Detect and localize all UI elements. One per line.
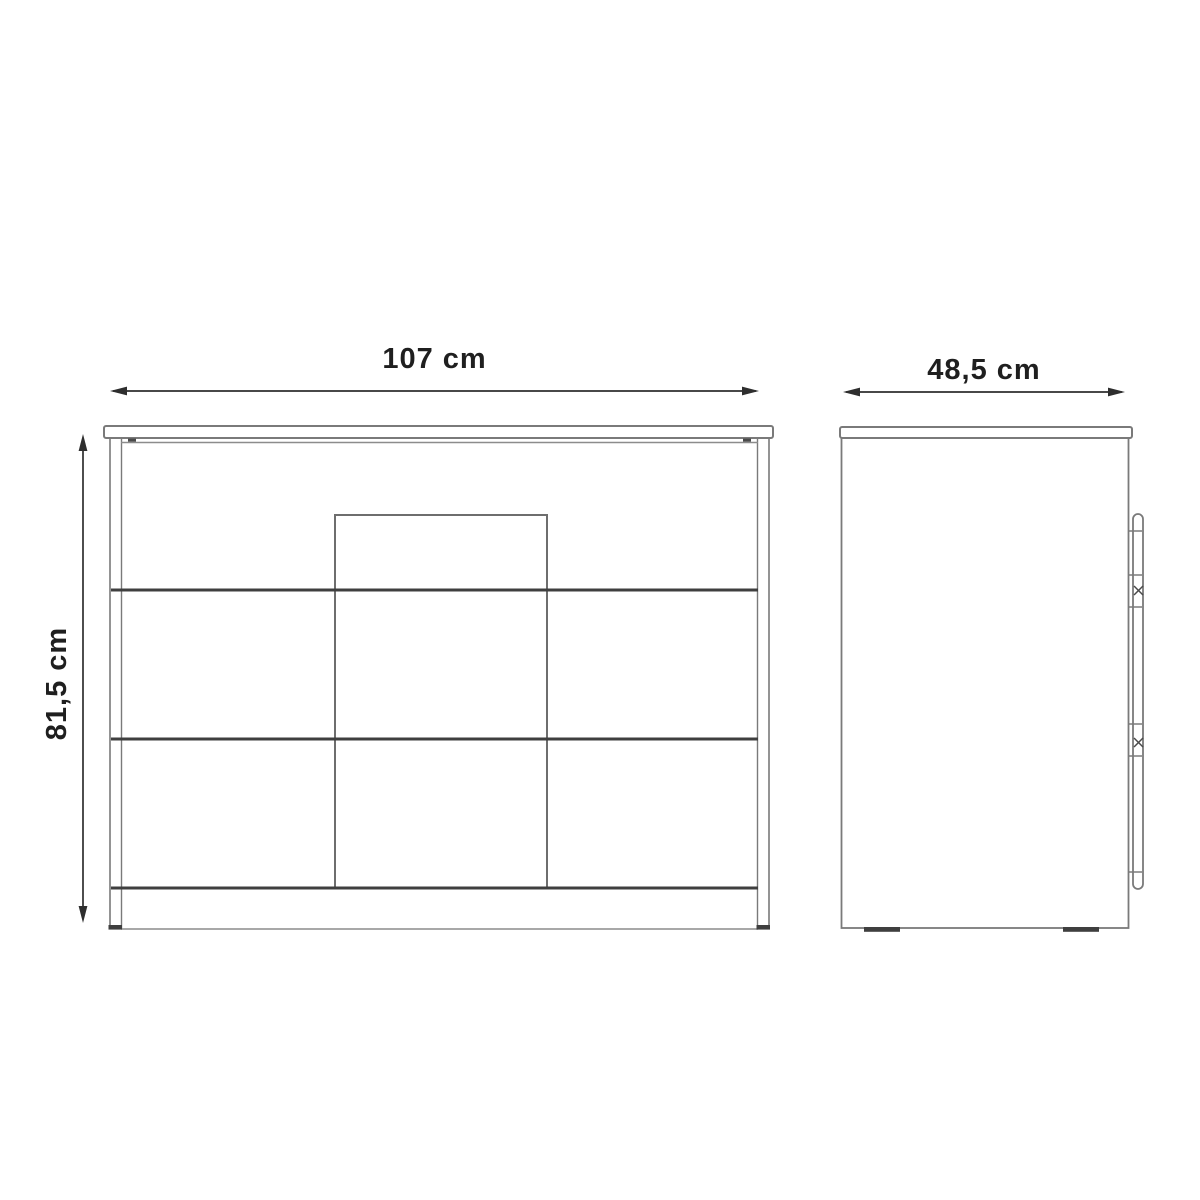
front-left-foot xyxy=(109,925,123,930)
height-dimension-label-text: 81,5 cm xyxy=(42,626,75,739)
front-center-panel xyxy=(335,515,547,888)
side-back-foot xyxy=(864,927,900,932)
width-dimension-label: 107 cm xyxy=(110,343,759,376)
side-top-slab xyxy=(840,427,1132,438)
front-right-foot xyxy=(757,925,771,930)
arrowhead-left xyxy=(843,388,860,397)
side-front-foot xyxy=(1063,927,1099,932)
width-dimension-arrow xyxy=(110,387,759,396)
side-body xyxy=(842,438,1129,928)
side-front-strip xyxy=(1133,514,1143,889)
arrowhead-right xyxy=(742,387,759,396)
side-view xyxy=(840,427,1143,932)
height-dimension-arrow xyxy=(79,434,88,923)
front-view xyxy=(104,426,773,930)
arrowhead-top xyxy=(79,434,88,451)
line-drawing xyxy=(0,0,1200,1200)
arrowhead-left xyxy=(110,387,127,396)
front-corner-tick-right xyxy=(743,439,751,442)
front-top-slab xyxy=(104,426,773,438)
depth-dimension-label: 48,5 cm xyxy=(843,354,1125,387)
dimension-diagram: 107 cm 48,5 cm 81,5 cm xyxy=(0,0,1200,1200)
arrowhead-right xyxy=(1108,388,1125,397)
depth-dimension-arrow xyxy=(843,388,1125,397)
arrowhead-bottom xyxy=(79,906,88,923)
front-corner-tick-left xyxy=(128,439,136,442)
